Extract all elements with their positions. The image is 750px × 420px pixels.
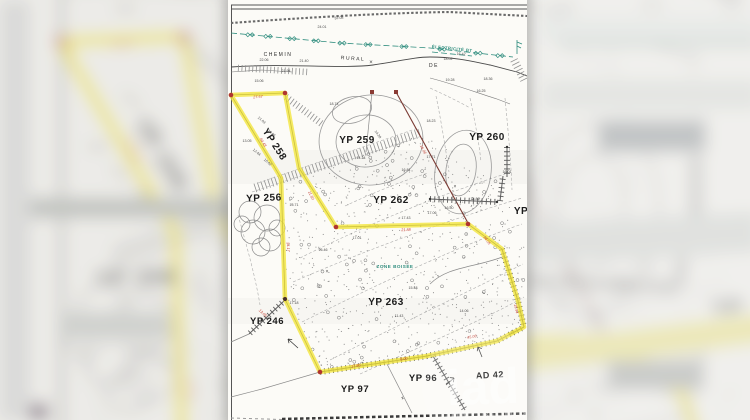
watermark-logo: iad xyxy=(446,358,520,416)
cadastral-map: ×××××××× xyxy=(0,0,750,420)
watermark-subtext: IMMOBILIER xyxy=(446,410,528,420)
cadastral-plan-screenshot: ×××××××× xyxy=(0,0,750,420)
